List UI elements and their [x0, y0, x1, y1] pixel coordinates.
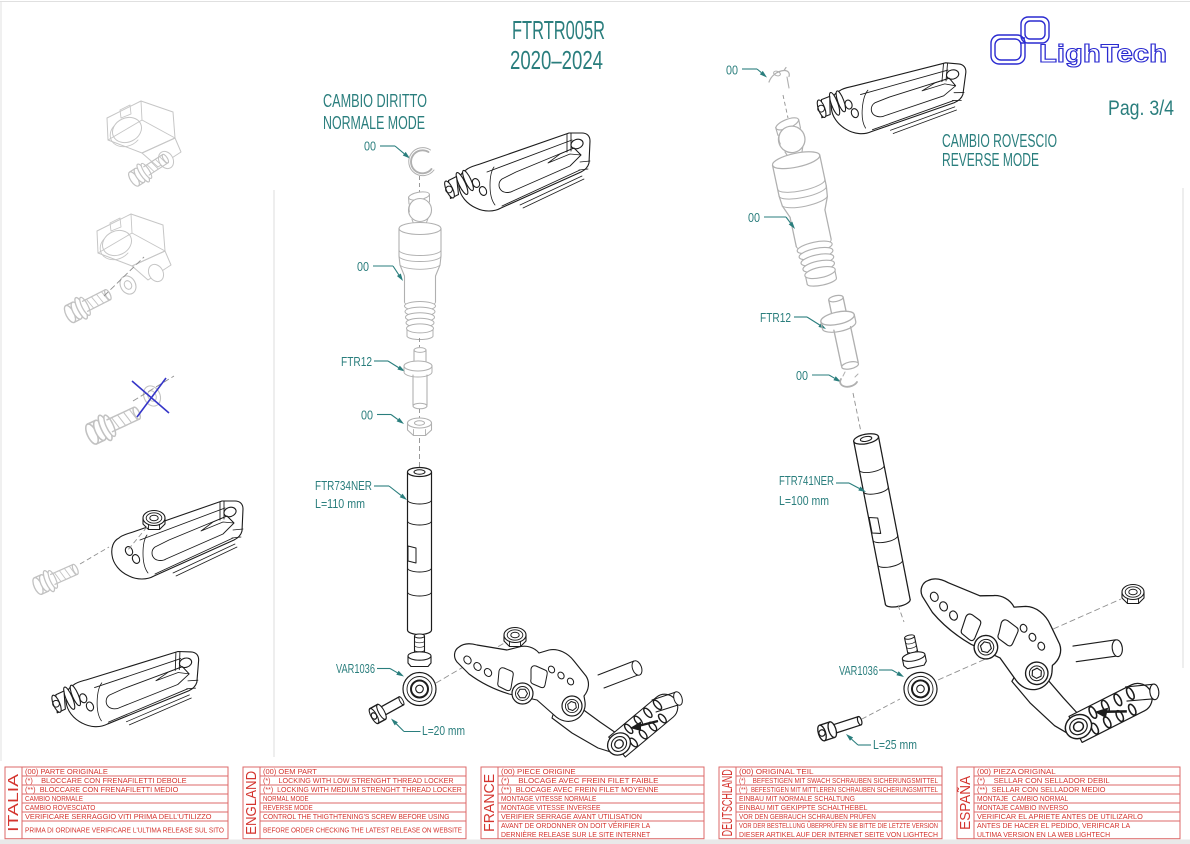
svg-text:00: 00	[364, 139, 376, 154]
svg-text:VERIFICARE SERRAGGIO VITI PRIM: VERIFICARE SERRAGGIO VITI PRIMA DELL'UTI…	[25, 812, 212, 821]
svg-text:VOR DEN GEBRAUCH SCHRAUBEN PRÜ: VOR DEN GEBRAUCH SCHRAUBEN PRÜFEN	[739, 812, 876, 821]
svg-text:VERIFICAR EL APRIETE ANTES DE: VERIFICAR EL APRIETE ANTES DE UTILIZARLO	[977, 812, 1143, 821]
svg-text:CAMBIO ROVESCIATO: CAMBIO ROVESCIATO	[25, 803, 96, 812]
svg-text:VAR1036: VAR1036	[839, 663, 878, 678]
svg-text:ESPAÑA: ESPAÑA	[957, 776, 974, 830]
svg-text:(**) SELLAR CON SELLADOR MEDI: (**) SELLAR CON SELLADOR MEDIO	[977, 785, 1106, 794]
svg-text:(*) BEFESTIGEN MIT SWACH SC: (*) BEFESTIGEN MIT SWACH SCHRAUBEN SICHE…	[739, 776, 938, 785]
svg-text:(*) SELLAR CON SELLADOR DEB: (*) SELLAR CON SELLADOR DEBIL	[977, 776, 1110, 785]
svg-text:L=25 mm: L=25 mm	[873, 737, 917, 752]
svg-text:ENGLAND: ENGLAND	[244, 771, 260, 835]
svg-text:MONTAJE CAMBIO NORMAL: MONTAJE CAMBIO NORMAL	[977, 794, 1068, 803]
svg-text:FRANCE: FRANCE	[482, 774, 498, 832]
svg-text:ULTIMA VERSION EN LA WEB LIGHT: ULTIMA VERSION EN LA WEB LIGHTECH	[977, 830, 1110, 839]
svg-text:NORMAL MODE: NORMAL MODE	[263, 794, 309, 803]
svg-text:(*) BLOCCARE CON FRENAFILET: (*) BLOCCARE CON FRENAFILETTI DEBOLE	[25, 776, 187, 785]
svg-text:CAMBIO ROVESCIO: CAMBIO ROVESCIO	[942, 131, 1057, 151]
svg-text:L=20 mm: L=20 mm	[422, 723, 465, 738]
svg-text:REVERSE MODE: REVERSE MODE	[263, 803, 313, 812]
svg-text:EINBAU MIT GEKIPPTE SCHALTHEBE: EINBAU MIT GEKIPPTE SCHALTHEBEL	[739, 803, 868, 812]
svg-text:NORMALE MODE: NORMALE MODE	[323, 113, 425, 133]
svg-text:VAR1036: VAR1036	[336, 661, 375, 676]
svg-text:(**) BEFESTIGEN MIT MITTLEREN: (**) BEFESTIGEN MIT MITTLEREN SCHRAUBEN …	[739, 785, 938, 794]
svg-text:BEFORE ORDER CHECKING THE LATE: BEFORE ORDER CHECKING THE LATEST RELEASE…	[263, 826, 462, 835]
svg-text:(**) LOCKING WITH MEDIUM STRE: (**) LOCKING WITH MEDIUM STRENGHT THREAD…	[263, 785, 462, 794]
svg-text:REVERSE MODE: REVERSE MODE	[942, 150, 1039, 170]
svg-text:DIESER ARTIKEL AUF DER INTERNE: DIESER ARTIKEL AUF DER INTERNET SEITE VO…	[739, 830, 938, 839]
svg-text:FTR741NER: FTR741NER	[779, 473, 834, 488]
svg-text:EINBAU MIT NORMALE SCHALTUNG: EINBAU MIT NORMALE SCHALTUNG	[739, 794, 855, 803]
svg-text:(00) PIECE ORIGINE: (00) PIECE ORIGINE	[501, 767, 576, 776]
svg-text:00: 00	[796, 368, 808, 383]
svg-text:DERNIÈRE RELEASE SUR LE SITE I: DERNIÈRE RELEASE SUR LE SITE INTERNET	[501, 830, 651, 839]
svg-text:(00) PIEZA ORIGINAL: (00) PIEZA ORIGINAL	[977, 767, 1056, 776]
svg-text:00: 00	[748, 210, 760, 225]
svg-text:ITALIA: ITALIA	[6, 773, 22, 831]
svg-text:FTR12: FTR12	[760, 310, 791, 325]
svg-text:L=110 mm: L=110 mm	[315, 496, 365, 511]
svg-text:(*) BLOCAGE AVEC FREIN FILE: (*) BLOCAGE AVEC FREIN FILET FAIBLE	[501, 776, 659, 785]
svg-text:(00) OEM PART: (00) OEM PART	[263, 767, 317, 776]
svg-text:FTR12: FTR12	[341, 354, 372, 369]
svg-text:VERIFIER SERRAGE AVANT UTILISA: VERIFIER SERRAGE AVANT UTILISATION	[501, 812, 642, 821]
svg-text:LighTech: LighTech	[1039, 40, 1167, 68]
svg-text:2020–2024: 2020–2024	[510, 45, 603, 75]
svg-text:MONTAJE CAMBIO INVERSO: MONTAJE CAMBIO INVERSO	[977, 803, 1068, 812]
svg-text:00: 00	[361, 408, 373, 423]
svg-text:00: 00	[357, 259, 369, 274]
svg-text:DEUTSCHLAND: DEUTSCHLAND	[720, 769, 736, 836]
svg-text:CAMBIO DIRITTO: CAMBIO DIRITTO	[323, 91, 427, 111]
svg-text:PRIMA DI ORDINARE VERIFICARE L: PRIMA DI ORDINARE VERIFICARE L'ULTIMA RE…	[25, 826, 224, 835]
svg-text:(**) BLOCAGE AVEC FREIN FILET: (**) BLOCAGE AVEC FREIN FILET MOYENNE	[501, 785, 659, 794]
svg-text:FTRTR005R: FTRTR005R	[512, 15, 605, 45]
svg-text:CONTROL THE THIGTHTENING'S SCR: CONTROL THE THIGTHTENING'S SCREW BEFORE …	[263, 812, 450, 821]
svg-text:MONTAGE VITESSE NORMALE: MONTAGE VITESSE NORMALE	[501, 794, 596, 803]
svg-text:Pag. 3/4: Pag. 3/4	[1108, 97, 1174, 120]
svg-text:(00) PARTE ORIGINALE: (00) PARTE ORIGINALE	[25, 767, 108, 776]
svg-text:CAMBIO NORMALE: CAMBIO NORMALE	[25, 794, 83, 803]
svg-text:(*) LOCKING WITH LOW STRENG: (*) LOCKING WITH LOW STRENGHT THREAD LOC…	[263, 776, 454, 785]
svg-text:00: 00	[726, 63, 738, 78]
svg-text:L=100 mm: L=100 mm	[779, 493, 829, 508]
svg-text:MONTAGE VITESSE INVERSEE: MONTAGE VITESSE INVERSEE	[501, 803, 601, 812]
svg-text:(00) ORIGINAL TEIL: (00) ORIGINAL TEIL	[739, 767, 814, 776]
svg-text:FTR734NER: FTR734NER	[315, 478, 372, 493]
svg-text:(**) BLOCCARE CON FRENAFILETT: (**) BLOCCARE CON FRENAFILETTI MEDIO	[25, 785, 179, 794]
